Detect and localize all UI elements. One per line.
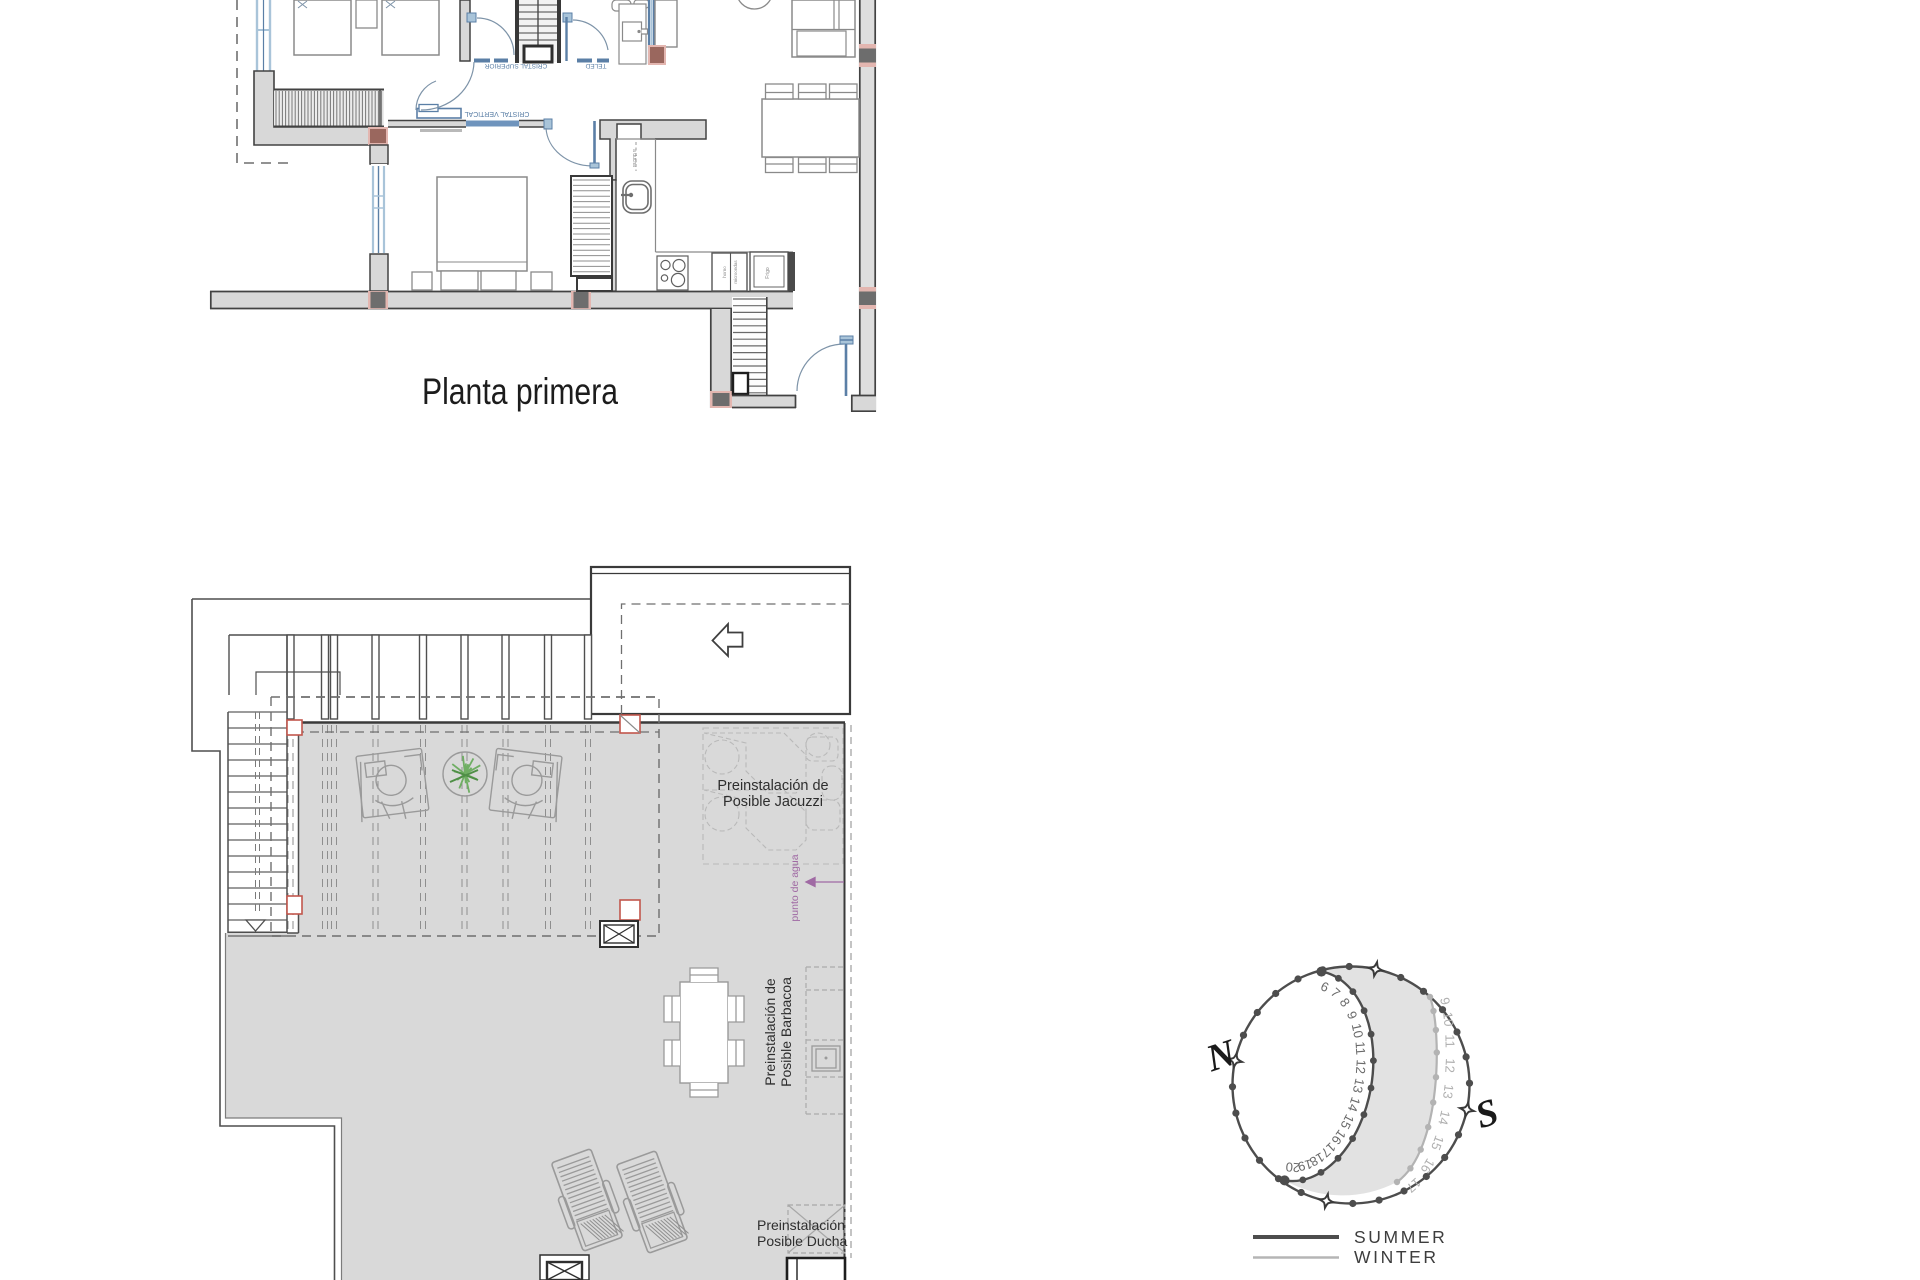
svg-text:SUMMER: SUMMER <box>1354 1227 1447 1247</box>
svg-text:14: 14 <box>1435 1109 1453 1126</box>
svg-text:punto de agua: punto de agua <box>789 854 801 921</box>
svg-text:a ducha: a ducha <box>631 149 637 167</box>
svg-text:Preinstalación de: Preinstalación de <box>717 778 828 794</box>
svg-text:7: 7 <box>1328 985 1343 1001</box>
svg-text:Preinstalación: Preinstalación <box>757 1217 845 1233</box>
svg-text:10: 10 <box>1440 1011 1456 1027</box>
svg-text:Posible Barbacoa: Posible Barbacoa <box>778 977 794 1087</box>
svg-text:microondas: microondas <box>733 260 738 284</box>
svg-text:11: 11 <box>1352 1041 1368 1056</box>
svg-text:9: 9 <box>1437 996 1453 1006</box>
svg-text:Frigo: Frigo <box>765 267 771 279</box>
svg-text:20: 20 <box>1285 1159 1300 1175</box>
svg-text:10: 10 <box>1349 1022 1367 1039</box>
svg-text:11: 11 <box>1442 1034 1457 1048</box>
svg-text:12: 12 <box>1442 1058 1458 1073</box>
svg-text:16: 16 <box>1418 1156 1438 1176</box>
svg-text:WINTER: WINTER <box>1354 1247 1439 1267</box>
svg-text:15: 15 <box>1428 1134 1447 1153</box>
svg-text:TELED: TELED <box>585 62 606 69</box>
svg-text:CRISTAL SUPERIOR: CRISTAL SUPERIOR <box>484 62 547 69</box>
svg-text:9: 9 <box>1344 1009 1361 1021</box>
svg-text:Preinstalación de: Preinstalación de <box>762 978 778 1086</box>
svg-text:14: 14 <box>1345 1095 1364 1114</box>
svg-text:Posible Ducha: Posible Ducha <box>757 1233 847 1249</box>
svg-text:13: 13 <box>1440 1083 1457 1099</box>
svg-text:Posible Jacuzzi: Posible Jacuzzi <box>723 794 823 810</box>
svg-text:Planta primera: Planta primera <box>422 371 618 412</box>
svg-text:12: 12 <box>1353 1059 1369 1074</box>
svg-text:CRISTAL VERTICAL: CRISTAL VERTICAL <box>464 110 529 117</box>
svg-text:8: 8 <box>1337 995 1353 1009</box>
svg-text:S: S <box>1470 1091 1503 1137</box>
svg-text:horno: horno <box>722 266 727 278</box>
svg-text:13: 13 <box>1350 1077 1368 1094</box>
svg-text:6: 6 <box>1318 978 1331 995</box>
